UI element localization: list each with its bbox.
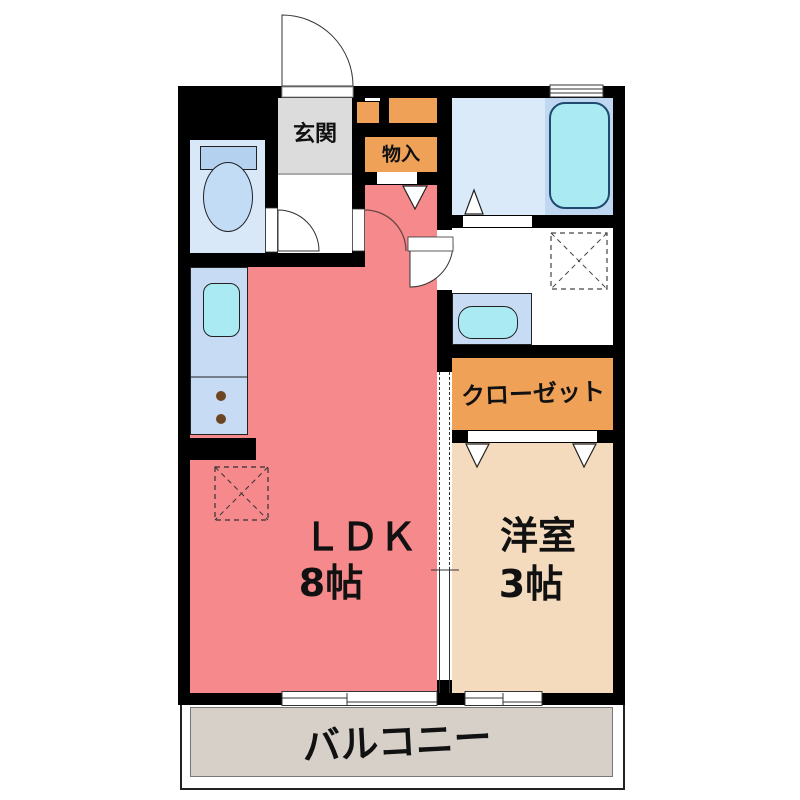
wall [437,97,452,230]
wall [452,430,613,443]
room-size-ldk: 8帖 [299,564,363,602]
wall [437,290,452,372]
room-label-western: 洋室 [500,517,576,555]
room-bathroom [450,98,545,215]
room-label-genkan: 玄関 [293,124,337,146]
wall [437,345,625,358]
kitchen-sink-icon [203,283,240,337]
wall [265,140,278,253]
wall [178,86,278,140]
stove-burner-icon [216,391,226,401]
floor-plan: 玄関 物入 クローゼット ＬＤＫ 8帖 洋室 3帖 バルコニー [0,0,800,800]
wall [178,253,365,267]
wall [613,86,625,705]
wall [437,215,625,228]
toilet-bowl-icon [203,162,253,232]
wall [380,97,389,124]
wall [178,693,625,705]
room-entry-hall [278,175,352,253]
wall [365,172,437,185]
room-label-ldk: ＬＤＫ [303,518,417,556]
washbasin-icon [458,306,518,339]
room-label-closet: クローゼット [461,379,606,408]
bathtub-icon [549,102,610,209]
room-corridor [365,185,437,267]
wall [178,86,190,705]
wall [190,438,256,460]
wall [352,250,365,267]
room-label-storage: 物入 [382,145,421,165]
pipe-space-box [356,101,380,124]
wall [352,123,437,137]
entrance-door-swing-icon [282,15,353,97]
wall [437,680,452,705]
room-size-western: 3帖 [499,565,563,603]
storage-upper-box [389,97,437,124]
room-label-balcony: バルコニー [302,718,493,766]
stove-burner-icon [216,414,226,424]
